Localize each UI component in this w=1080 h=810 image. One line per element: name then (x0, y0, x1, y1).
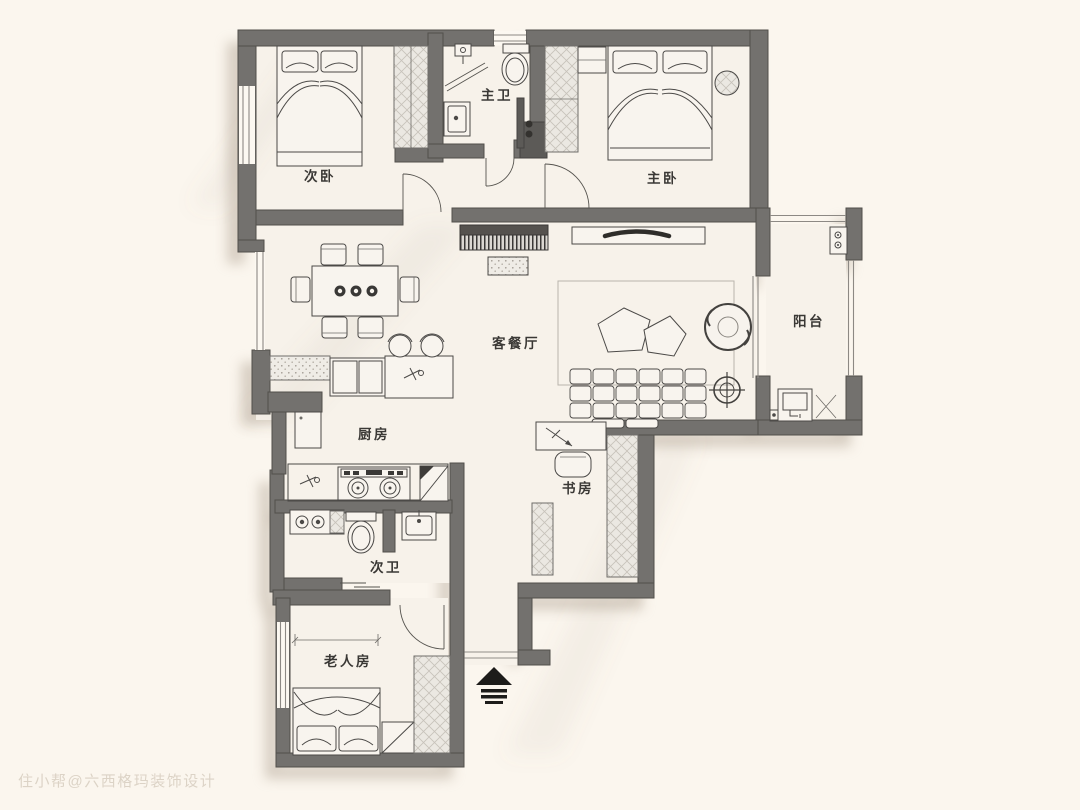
room-label-balcony: 阳台 (793, 313, 825, 329)
gas-stove (338, 467, 410, 500)
piano-bench (488, 257, 528, 275)
kitchen-counter-top (270, 356, 330, 380)
wall-west-cap (238, 240, 264, 252)
refrigerator (420, 466, 448, 501)
round-side-table-master (715, 71, 739, 95)
double-bed-master (608, 46, 712, 160)
wall-east-master (750, 30, 768, 212)
washbasin-hall (402, 510, 436, 540)
room-label-master-bedroom: 主卧 (647, 170, 679, 186)
wall-study-east (638, 435, 654, 598)
room-label-elderly-room: 老人房 (324, 653, 372, 669)
room-label-secondary-bathroom: 次卫 (370, 559, 402, 575)
bookshelf-study-east (607, 435, 638, 577)
place-settings (335, 286, 378, 297)
study-chair (555, 452, 591, 477)
wall-elder-north (273, 590, 390, 605)
room-label-living-dining: 客餐厅 (491, 335, 540, 351)
wall-study-south (518, 583, 654, 598)
watermark-text: 住小帮@六西格玛装饰设计 (18, 773, 216, 790)
window-bath1-north (494, 31, 526, 45)
wall-balcony-south (756, 420, 862, 435)
dining-table (312, 266, 398, 316)
wall-bath2-divider (383, 510, 395, 552)
bookshelf-study-west (532, 503, 553, 575)
double-bed-elder (293, 688, 380, 755)
wardrobe-elder (414, 656, 450, 753)
window-dining-west (255, 252, 265, 350)
wall-kitchen-west-lower (272, 412, 286, 474)
wall-bed2-south (256, 210, 403, 225)
toilet-bath2 (346, 512, 376, 553)
double-bed-secondary (277, 46, 362, 166)
balcony-water-heater (830, 227, 847, 254)
wall-entry-stub (518, 650, 550, 665)
wall-bath2-west (270, 470, 284, 592)
kitchen-island (330, 356, 453, 398)
wall-kitchen-entry-bar (268, 392, 322, 412)
wall-top-right (526, 30, 768, 46)
washer-counter-bath2 (290, 510, 344, 534)
kitchen-side-cabinet (295, 412, 321, 448)
wall-bath1-west (428, 33, 443, 151)
wardrobe-secondary (394, 46, 428, 148)
study-desk (536, 422, 606, 450)
wall-bath1-south-left (428, 144, 484, 158)
vanity-sink-bath1 (444, 102, 470, 136)
window-elder-west (277, 622, 289, 708)
swivel-armchair (705, 304, 751, 350)
wall-living-north (452, 208, 768, 222)
piano (460, 225, 548, 250)
toilet-bath1 (502, 44, 529, 85)
bedside-cabinet-elder (382, 722, 414, 753)
nightstand-master-left (578, 47, 606, 73)
wall-shower-stub (517, 98, 524, 148)
floor-plan-page: 次卧 主卫 主卧 阳台 客餐厅 厨房 书房 次卫 老人房 住小帮@六西格玛装饰设… (0, 0, 1080, 810)
wall-entry-east (518, 598, 532, 652)
window-bedroom2-west (239, 86, 255, 164)
room-label-secondary-bedroom: 次卧 (304, 168, 336, 184)
wall-balcony-nw (756, 208, 770, 276)
room-label-kitchen: 厨房 (358, 426, 390, 442)
room-label-study: 书房 (562, 480, 594, 496)
wall-balcony-ne (846, 208, 862, 260)
floor-plan-svg: 次卧 主卫 主卧 阳台 客餐厅 厨房 书房 次卫 老人房 住小帮@六西格玛装饰设… (0, 0, 1080, 810)
modular-sofa (569, 368, 707, 428)
room-label-master-bathroom: 主卫 (481, 87, 513, 103)
wall-kitchen-west-block (252, 350, 270, 414)
wardrobe-master (545, 46, 578, 152)
